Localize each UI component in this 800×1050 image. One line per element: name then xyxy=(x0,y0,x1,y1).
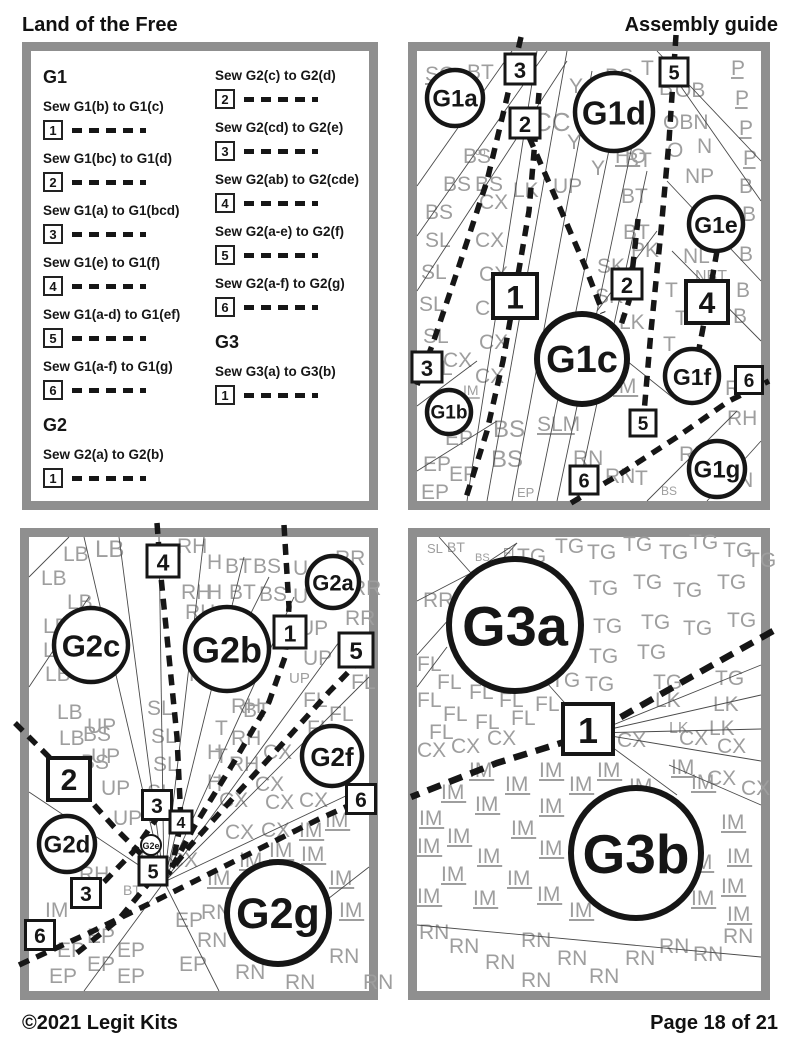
seam-number: 6 xyxy=(355,789,367,812)
fabric-code-label: FL xyxy=(535,693,560,716)
piece-label: G3b xyxy=(583,823,690,885)
fabric-code-label: RN xyxy=(589,965,619,988)
fabric-code-label: BT xyxy=(225,555,252,578)
fabric-code-label: RN xyxy=(485,951,515,974)
fabric-code-label: IM xyxy=(441,781,464,804)
stitch-dash-sample xyxy=(72,388,146,393)
fabric-code-label: BS xyxy=(661,484,677,498)
diagram-g3-panel: SLBTBSFLRRTGTGTGTGTGTGTGTGTGTGTGTGTGTGTG… xyxy=(408,528,770,1000)
fabric-code-label: EP xyxy=(117,965,145,988)
fabric-code-label: T xyxy=(215,717,228,740)
seam-number: 6 xyxy=(578,471,589,493)
piece-label: G2c xyxy=(62,629,121,664)
fabric-code-label: TG xyxy=(585,673,614,696)
fabric-code-label: LK xyxy=(713,693,739,716)
fabric-code-label: IM xyxy=(329,867,352,890)
group-heading: G3 xyxy=(215,332,359,353)
fabric-code-label: TG xyxy=(715,667,744,690)
step-seam-row: 5 xyxy=(43,328,215,348)
piece-label: G2g xyxy=(236,890,320,938)
fabric-code-label: TG xyxy=(637,641,666,664)
fabric-code-label: RH xyxy=(231,695,261,718)
fabric-code-label: SLM xyxy=(537,413,580,436)
fabric-code-label: NP xyxy=(685,165,714,188)
piece-label: G1c xyxy=(546,339,618,381)
fabric-code-label: SL xyxy=(153,753,179,776)
fabric-code-label: IM xyxy=(45,899,68,922)
fabric-code-label: IM xyxy=(301,843,324,866)
fabric-code-label: IM xyxy=(597,759,620,782)
stitch-dash-sample xyxy=(72,476,146,481)
page-subtitle: Assembly guide xyxy=(625,14,778,37)
piece-label: G1f xyxy=(673,364,712,390)
fabric-code-label: IM xyxy=(477,845,500,868)
step-text: Sew G2(a) to G2(b) xyxy=(43,447,215,462)
seam-number: 5 xyxy=(147,862,158,884)
fabric-code-label: IM xyxy=(417,835,440,858)
seam-number: 4 xyxy=(177,815,186,832)
step-seam-row: 1 xyxy=(43,120,215,140)
fabric-code-label: TG xyxy=(593,615,622,638)
step-seam-row: 4 xyxy=(215,193,359,213)
stitch-dash-sample xyxy=(244,393,318,398)
seam-number: 6 xyxy=(744,371,755,392)
piece-label: G2e xyxy=(142,841,159,851)
fabric-code-label: N xyxy=(697,135,712,158)
step-seam-row: 6 xyxy=(43,380,215,400)
fabric-code-label: RR xyxy=(345,607,375,630)
fabric-code-label: TG xyxy=(673,579,702,602)
fabric-code-label: RN xyxy=(557,947,587,970)
fabric-code-label: SL xyxy=(425,229,451,252)
stitch-dash-sample xyxy=(72,336,146,341)
diagram-g2-panel: LBLBLBLBLBLBLBLBLBBSBSSLHHBTBTBSBSUURRRR… xyxy=(20,528,378,1000)
fabric-code-label: P xyxy=(735,87,749,110)
fabric-code-label: TG xyxy=(641,611,670,634)
step-number-box: 4 xyxy=(215,193,235,213)
fabric-code-label: RH xyxy=(727,407,757,430)
seam-number: 1 xyxy=(284,621,297,647)
fabric-code-label: EP xyxy=(49,965,77,988)
fabric-code-label: RN xyxy=(419,921,449,944)
step-text: Sew G2(a-f) to G2(g) xyxy=(215,276,359,291)
step-number-box: 2 xyxy=(215,89,235,109)
step-number-box: 1 xyxy=(215,385,235,405)
fabric-code-label: EP xyxy=(87,953,115,976)
seam-number: 2 xyxy=(61,764,78,797)
step-text: Sew G1(e) to G1(f) xyxy=(43,255,215,270)
page-header: Land of the Free Assembly guide xyxy=(22,14,778,37)
seam-number: 3 xyxy=(514,58,526,83)
fabric-code-label: RN xyxy=(723,925,753,948)
fabric-code-label: TG xyxy=(555,535,584,558)
fabric-code-label: RN xyxy=(329,945,359,968)
group-heading: G2 xyxy=(43,415,215,436)
seam-number: 5 xyxy=(349,638,362,665)
fabric-code-label: RN xyxy=(659,935,689,958)
step-text: Sew G1(a-d) to G1(ef) xyxy=(43,307,215,322)
fabric-code-label: RN xyxy=(625,947,655,970)
seam-number: 4 xyxy=(699,287,716,320)
seam-number: 3 xyxy=(80,883,92,906)
step-text: Sew G1(a-f) to G1(g) xyxy=(43,359,215,374)
step-number-box: 4 xyxy=(43,276,63,296)
seam-number: 1 xyxy=(506,280,524,316)
step-text: Sew G2(c) to G2(d) xyxy=(215,68,359,83)
fabric-code-label: TG xyxy=(623,533,652,556)
fabric-code-label: LB xyxy=(59,727,85,750)
fabric-code-label: BT xyxy=(447,539,465,555)
step-number-box: 1 xyxy=(43,120,63,140)
step-text: Sew G1(b) to G1(c) xyxy=(43,99,215,114)
copyright-text: ©2021 Legit Kits xyxy=(22,1012,178,1035)
step-text: Sew G2(cd) to G2(e) xyxy=(215,120,359,135)
step-number-box: 2 xyxy=(43,172,63,192)
fabric-code-label: T xyxy=(665,279,678,302)
fabric-code-label: T xyxy=(663,333,676,356)
seam-number: 2 xyxy=(519,112,531,137)
fabric-code-label: H xyxy=(207,551,222,574)
fabric-code-label: IM xyxy=(537,883,560,906)
step-seam-row: 6 xyxy=(215,297,359,317)
fabric-code-label: IM xyxy=(569,899,592,922)
step-text: Sew G2(ab) to G2(cde) xyxy=(215,172,359,187)
fabric-code-label: TG xyxy=(633,571,662,594)
piece-label: G1a xyxy=(432,86,478,113)
fabric-code-label: RN xyxy=(449,935,479,958)
fabric-code-label: UP xyxy=(87,715,116,738)
fabric-code-label: IM xyxy=(539,837,562,860)
fabric-code-label: SL xyxy=(147,697,173,720)
step-seam-row: 3 xyxy=(215,141,359,161)
step-number-box: 6 xyxy=(43,380,63,400)
step-number-box: 3 xyxy=(215,141,235,161)
fabric-code-label: FL xyxy=(329,703,354,726)
fabric-code-label: P xyxy=(731,57,745,80)
fabric-code-label: UP xyxy=(553,175,582,198)
piece-label: G2b xyxy=(192,630,262,671)
fabric-code-label: IM xyxy=(691,887,714,910)
fabric-code-label: RN xyxy=(521,929,551,952)
fabric-code-label: IM xyxy=(721,811,744,834)
fabric-code-label: TG xyxy=(747,549,776,572)
fabric-code-label: TG xyxy=(659,541,688,564)
fabric-code-label: Y xyxy=(591,157,605,180)
fabric-code-label: RN xyxy=(693,943,723,966)
piece-label: G2f xyxy=(310,742,354,772)
fabric-code-label: UP xyxy=(303,647,332,670)
piece-label: G1g xyxy=(694,457,741,484)
fabric-code-label: LB xyxy=(95,536,124,563)
fabric-code-label: CX xyxy=(487,727,516,750)
fabric-code-label: UP xyxy=(289,670,310,687)
page-footer: ©2021 Legit Kits Page 18 of 21 xyxy=(22,1012,778,1035)
fabric-code-label: EP xyxy=(517,485,534,500)
fabric-code-label: CX xyxy=(741,777,770,800)
stitch-dash-sample xyxy=(72,232,146,237)
step-seam-row: 1 xyxy=(215,385,359,405)
fabric-code-label: CX xyxy=(225,821,254,844)
fabric-code-label: IM xyxy=(339,899,362,922)
fabric-code-label: IM xyxy=(721,875,744,898)
fabric-code-label: EP xyxy=(117,939,145,962)
fabric-code-label: T xyxy=(635,467,648,490)
fabric-code-label: IM xyxy=(539,759,562,782)
fabric-code-label: SL xyxy=(151,725,177,748)
fabric-code-label: IM xyxy=(569,773,592,796)
stitch-dash-sample xyxy=(244,305,318,310)
instructions-column-2: Sew G2(c) to G2(d)2Sew G2(cd) to G2(e)3S… xyxy=(215,65,359,501)
piece-label: G2a xyxy=(312,571,354,596)
fabric-code-label: IM xyxy=(539,795,562,818)
fabric-code-label: CX xyxy=(299,789,328,812)
seam-number: 3 xyxy=(421,356,433,381)
piece-label: G2d xyxy=(44,832,91,859)
step-number-box: 3 xyxy=(43,224,63,244)
step-number-box: 5 xyxy=(215,245,235,265)
seam-number: 4 xyxy=(157,550,170,576)
step-text: Sew G3(a) to G3(b) xyxy=(215,364,359,379)
fabric-code-label: IM xyxy=(691,771,714,794)
fabric-code-label: IM xyxy=(727,903,750,926)
fabric-code-label: IM xyxy=(447,825,470,848)
step-seam-row: 3 xyxy=(43,224,215,244)
fabric-code-label: IM xyxy=(269,839,292,862)
step-number-box: 5 xyxy=(43,328,63,348)
group-heading: G1 xyxy=(43,67,215,88)
fabric-code-label: P xyxy=(743,147,757,170)
fabric-code-label: RN xyxy=(285,971,315,994)
g3-diagram: SLBTBSFLRRTGTGTGTGTGTGTGTGTGTGTGTGTGTGTG… xyxy=(417,537,761,991)
fabric-code-label: FL xyxy=(417,689,442,712)
step-seam-row: 5 xyxy=(215,245,359,265)
fabric-code-label: RN xyxy=(235,961,265,984)
fabric-code-label: RN xyxy=(605,465,635,488)
instructions-panel: G1Sew G1(b) to G1(c)1Sew G1(bc) to G1(d)… xyxy=(22,42,378,510)
stitch-dash-sample xyxy=(244,97,318,102)
fabric-code-label: CX xyxy=(417,739,446,762)
step-number-box: 1 xyxy=(43,468,63,488)
fabric-code-label: RN xyxy=(363,971,393,994)
step-text: Sew G1(a) to G1(bcd) xyxy=(43,203,215,218)
fabric-code-label: TG xyxy=(587,541,616,564)
step-number-box: 6 xyxy=(215,297,235,317)
fabric-code-label: EP xyxy=(179,953,207,976)
fabric-code-label: P xyxy=(739,117,753,140)
step-text: Sew G1(bc) to G1(d) xyxy=(43,151,215,166)
piece-label: G1e xyxy=(694,212,737,238)
stitch-dash-sample xyxy=(72,128,146,133)
fabric-code-label: IM xyxy=(419,807,442,830)
fabric-code-label: CX xyxy=(475,229,504,252)
fabric-code-label: IM xyxy=(507,867,530,890)
page-number: Page 18 of 21 xyxy=(650,1012,778,1035)
pattern-title: Land of the Free xyxy=(22,14,178,37)
seam-number: 1 xyxy=(578,710,598,751)
fabric-code-label: IM xyxy=(417,885,440,908)
fabric-code-label: T xyxy=(641,57,654,80)
piece-label: G1b xyxy=(431,403,468,424)
fabric-code-label: TG xyxy=(689,531,718,554)
seam-number: 6 xyxy=(34,925,46,948)
fabric-code-label: RN xyxy=(197,929,227,952)
stitch-dash-sample xyxy=(244,253,318,258)
fabric-code-label: TG xyxy=(589,645,618,668)
step-seam-row: 2 xyxy=(215,89,359,109)
fabric-code-label: BS xyxy=(259,583,287,606)
fabric-code-label: BS xyxy=(253,555,281,578)
g2-diagram: LBLBLBLBLBLBLBLBLBBSBSSLHHBTBTBSBSUURRRR… xyxy=(29,537,369,991)
fabric-code-label: IM xyxy=(441,863,464,886)
g1-diagram: SOBTYYYYCCcoHOBSBSBSBSBSTBOBPPPPOBNONNPB… xyxy=(417,51,761,501)
step-seam-row: 4 xyxy=(43,276,215,296)
fabric-code-label: BT xyxy=(621,185,648,208)
fabric-code-label: CX xyxy=(265,791,294,814)
piece-label: G1d xyxy=(582,95,646,132)
fabric-code-label: IM xyxy=(511,817,534,840)
instructions-column-1: G1Sew G1(b) to G1(c)1Sew G1(bc) to G1(d)… xyxy=(43,65,215,501)
seam-number: 5 xyxy=(668,63,679,85)
fabric-code-label: RN xyxy=(521,969,551,992)
fabric-code-label: TG xyxy=(589,577,618,600)
diagram-g1-panel: SOBTYYYYCCcoHOBSBSBSBSBSTBOBPPPPOBNONNPB… xyxy=(408,42,770,510)
fabric-code-label: TG xyxy=(683,617,712,640)
fabric-code-label: UP xyxy=(91,745,120,768)
stitch-dash-sample xyxy=(72,180,146,185)
fabric-code-label: LB xyxy=(41,567,67,590)
fabric-code-label: B xyxy=(739,243,753,266)
fabric-code-label: LB xyxy=(63,543,89,566)
step-text: Sew G2(a-e) to G2(f) xyxy=(215,224,359,239)
fabric-code-label: SL xyxy=(427,541,443,556)
step-seam-row: 1 xyxy=(43,468,215,488)
step-seam-row: 2 xyxy=(43,172,215,192)
seam-number: 2 xyxy=(621,273,633,298)
stitch-dash-sample xyxy=(244,201,318,206)
fabric-code-label: LB xyxy=(57,701,83,724)
fabric-code-label: UP xyxy=(101,777,130,800)
fabric-code-label: CX xyxy=(443,349,472,372)
fabric-code-label: IM xyxy=(505,773,528,796)
piece-label: G3a xyxy=(462,595,569,658)
assembly-guide-page: Land of the Free Assembly guide G1Sew G1… xyxy=(0,0,800,1050)
fabric-code-label: CX xyxy=(451,735,480,758)
fabric-code-label: IM xyxy=(473,887,496,910)
fabric-code-label: IM xyxy=(475,793,498,816)
fabric-code-label: EP xyxy=(421,481,449,504)
fabric-code-label: UP xyxy=(113,807,142,830)
fabric-code-label: B xyxy=(736,279,750,302)
fabric-code-label: TG xyxy=(717,571,746,594)
stitch-dash-sample xyxy=(244,149,318,154)
seam-number: 5 xyxy=(638,414,649,435)
fabric-code-label: TG xyxy=(727,609,756,632)
fabric-code-label: IM xyxy=(727,845,750,868)
seam-number: 3 xyxy=(151,795,163,818)
stitch-dash-sample xyxy=(72,284,146,289)
